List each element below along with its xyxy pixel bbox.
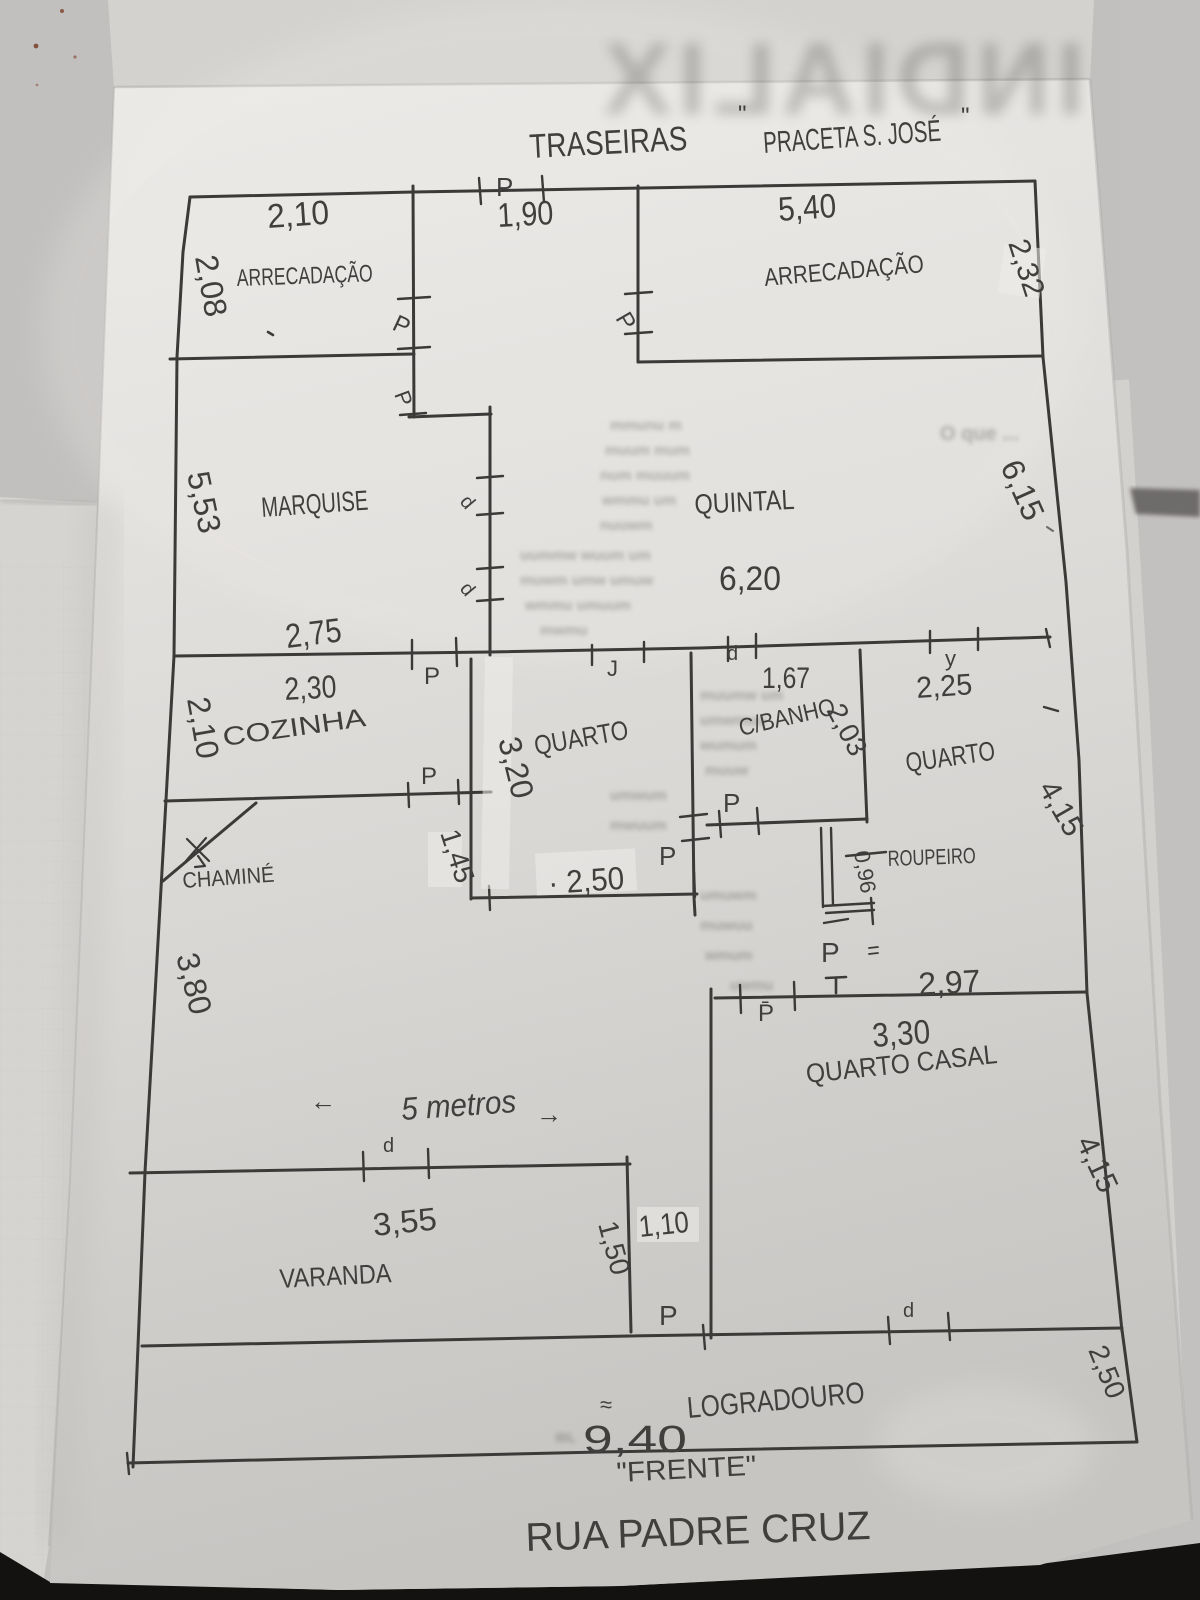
svg-text:QUINTAL: QUINTAL [694,484,795,520]
svg-text:wmmu um: wmmu um [601,492,676,509]
svg-text:IBL: IBL [555,1430,576,1445]
svg-text:VARANDA: VARANDA [279,1258,392,1294]
svg-text:umwum: umwum [610,787,667,804]
svg-text:P: P [424,663,440,690]
svg-text:2,10: 2,10 [266,194,330,236]
svg-text:nuuwm: nuuwm [600,517,653,534]
svg-text:P: P [421,763,437,790]
svg-text:2,30: 2,30 [283,668,337,707]
svg-text:wmmu umuum: wmmu umuum [524,597,631,614]
svg-text:6,20: 6,20 [719,560,781,598]
svg-text:1,67: 1,67 [762,662,810,695]
svg-text:umuwm: umuwm [700,887,757,904]
svg-text:3,55: 3,55 [371,1200,438,1242]
svg-text:1,10: 1,10 [637,1206,690,1244]
svg-text:P̄: P̄ [758,1000,774,1027]
svg-text:P: P [821,937,840,968]
svg-text:P: P [723,788,740,818]
svg-text:": " [738,101,747,128]
svg-text:2,25: 2,25 [915,668,973,705]
svg-text:INDIALIX: INDIALIX [597,21,1085,136]
svg-text:d: d [727,643,738,665]
svg-text:muwuu: muwuu [700,917,753,934]
svg-text:num muuum: num muuum [600,467,690,484]
svg-text:O que ...: O que ... [940,423,1019,445]
svg-text:mmunu m: mmunu m [610,417,682,434]
svg-text:2,97: 2,97 [917,963,981,1002]
svg-text:": " [961,103,970,130]
svg-text:mwuum: mwuum [610,817,667,834]
svg-text:ROUPEIRO: ROUPEIRO [887,843,976,871]
svg-text:→: → [536,1099,562,1129]
svg-text:1,90: 1,90 [496,194,554,235]
svg-text:J: J [607,656,618,681]
svg-text:d: d [903,1300,914,1322]
svg-text:d: d [383,1135,394,1157]
svg-text:· 2,50: · 2,50 [547,860,625,901]
svg-text:ARRECADAÇÃO: ARRECADAÇÃO [236,260,373,292]
svg-text:←: ← [310,1086,336,1116]
svg-text:P: P [659,1300,678,1331]
svg-text:mwmu: mwmu [540,622,588,639]
svg-text:uwmu: uwmu [730,977,773,994]
svg-text:2,75: 2,75 [283,611,343,656]
svg-text:muwm umw umuw: muwm umw umuw [520,572,654,589]
svg-text:y: y [945,646,956,671]
svg-text:P: P [659,841,676,871]
svg-text:wmum: wmum [704,947,753,964]
svg-text:muum mum: muum mum [605,442,690,459]
svg-text:uummw wuum um: uummw wuum um [520,547,651,564]
svg-text:≈: ≈ [600,1392,612,1417]
svg-text:5,40: 5,40 [777,187,838,229]
svg-text:muuw: muuw [705,762,749,779]
